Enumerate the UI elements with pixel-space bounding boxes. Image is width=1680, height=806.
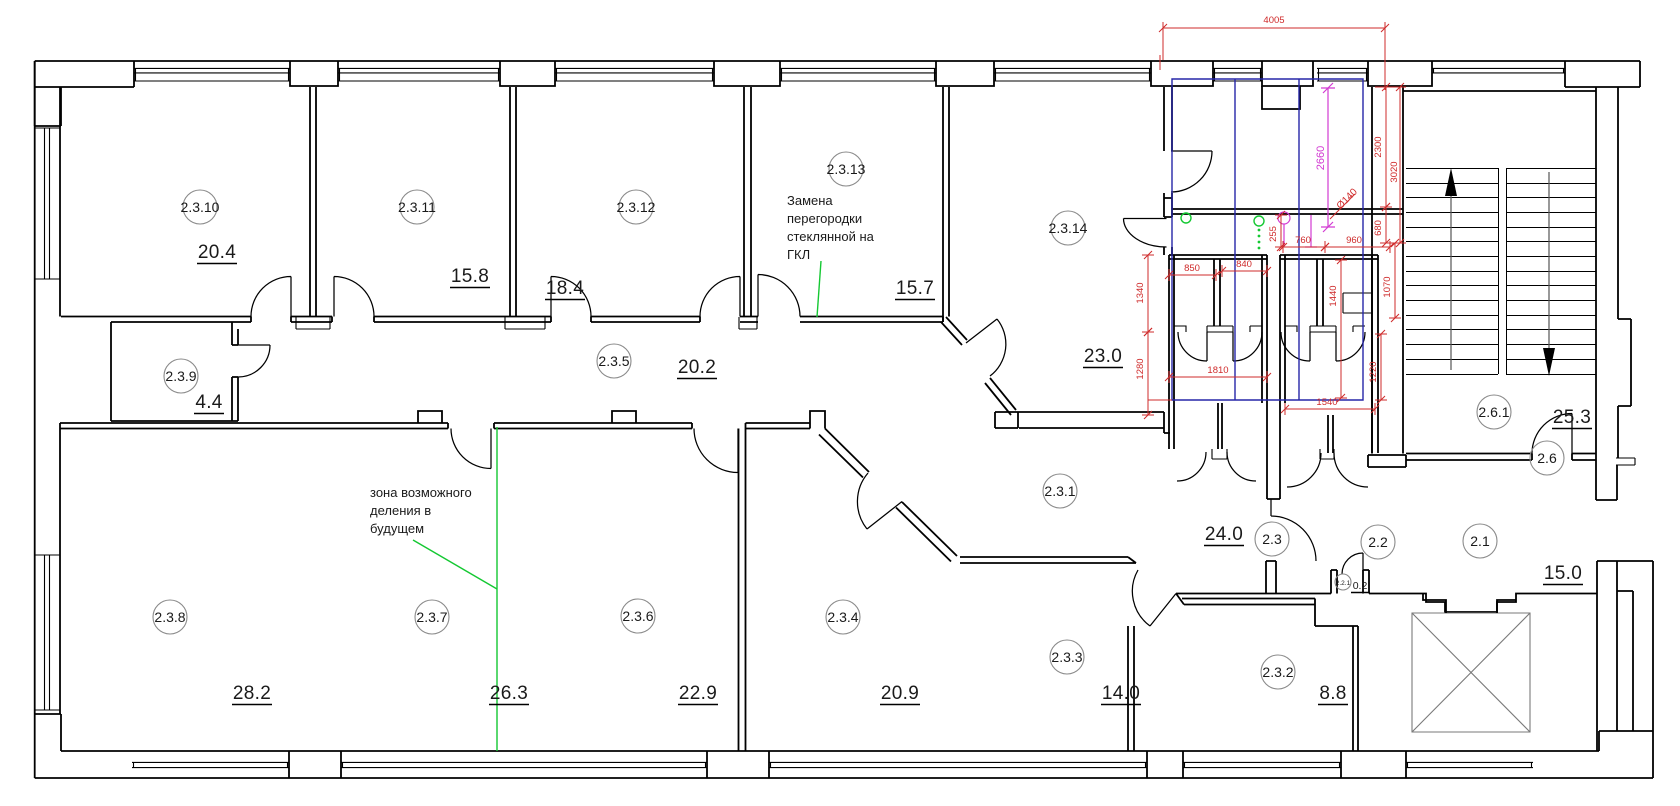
svg-text:2.2: 2.2 xyxy=(1368,534,1388,550)
svg-text:20.2: 20.2 xyxy=(678,357,716,378)
svg-text:850: 850 xyxy=(1184,263,1200,274)
svg-text:Замена: Замена xyxy=(787,193,833,208)
svg-text:2.3.4: 2.3.4 xyxy=(827,609,858,625)
svg-text:0.2: 0.2 xyxy=(1353,580,1368,592)
svg-text:15.7: 15.7 xyxy=(896,278,934,299)
svg-text:2660: 2660 xyxy=(1315,146,1327,170)
svg-text:2.3.5: 2.3.5 xyxy=(598,353,629,369)
svg-text:3020: 3020 xyxy=(1389,161,1400,182)
svg-text:2.3.13: 2.3.13 xyxy=(827,161,866,177)
svg-text:20.9: 20.9 xyxy=(881,683,919,704)
svg-text:22.9: 22.9 xyxy=(679,683,717,704)
svg-text:15.0: 15.0 xyxy=(1544,563,1582,584)
svg-text:1340: 1340 xyxy=(1135,282,1146,303)
svg-text:8.8: 8.8 xyxy=(1319,683,1346,704)
svg-text:760: 760 xyxy=(1295,235,1311,246)
svg-text:255: 255 xyxy=(1268,226,1279,242)
svg-text:1810: 1810 xyxy=(1207,365,1228,376)
svg-text:1070: 1070 xyxy=(1382,276,1393,297)
svg-text:680: 680 xyxy=(1373,220,1384,236)
svg-text:2.6.1: 2.6.1 xyxy=(1478,404,1509,420)
svg-text:будущем: будущем xyxy=(370,521,424,536)
svg-text:2300: 2300 xyxy=(1373,136,1384,157)
svg-text:2.3.14: 2.3.14 xyxy=(1049,220,1088,236)
svg-text:1220: 1220 xyxy=(1368,361,1379,382)
svg-text:4.4: 4.4 xyxy=(195,392,222,413)
svg-text:2.3.9: 2.3.9 xyxy=(165,368,196,384)
svg-text:20.4: 20.4 xyxy=(198,242,236,263)
svg-text:840: 840 xyxy=(1236,259,1252,270)
svg-text:2.3.11: 2.3.11 xyxy=(398,199,436,215)
svg-text:25.3: 25.3 xyxy=(1553,407,1591,428)
svg-text:2.6: 2.6 xyxy=(1537,450,1557,466)
svg-text:23.0: 23.0 xyxy=(1084,346,1122,367)
svg-text:ГКЛ: ГКЛ xyxy=(787,247,810,262)
svg-text:18.4: 18.4 xyxy=(546,278,584,299)
svg-text:15.8: 15.8 xyxy=(451,266,489,287)
svg-text:1280: 1280 xyxy=(1135,358,1146,379)
svg-text:2.3.8: 2.3.8 xyxy=(154,609,185,625)
svg-text:2.3.7: 2.3.7 xyxy=(416,609,447,625)
svg-text:2.1: 2.1 xyxy=(1470,533,1490,549)
svg-text:960: 960 xyxy=(1346,235,1362,246)
svg-text:1440: 1440 xyxy=(1328,285,1339,306)
svg-text:1540: 1540 xyxy=(1316,397,1337,408)
svg-text:4005: 4005 xyxy=(1263,15,1284,26)
svg-text:2.3: 2.3 xyxy=(1262,531,1282,547)
svg-text:2.3.6: 2.3.6 xyxy=(622,608,653,624)
svg-text:2.3.3: 2.3.3 xyxy=(1051,649,1082,665)
svg-text:деления в: деления в xyxy=(370,503,431,518)
svg-text:2.3.12: 2.3.12 xyxy=(617,199,656,215)
svg-text:2.3.1: 2.3.1 xyxy=(1044,483,1075,499)
svg-text:26.3: 26.3 xyxy=(490,683,528,704)
svg-text:28.2: 28.2 xyxy=(233,683,271,704)
svg-text:24.0: 24.0 xyxy=(1205,524,1243,545)
svg-text:2.3.10: 2.3.10 xyxy=(181,199,220,215)
svg-text:2.3.2: 2.3.2 xyxy=(1262,664,1293,680)
svg-text:14.0: 14.0 xyxy=(1102,683,1140,704)
svg-text:перегородки: перегородки xyxy=(787,211,862,226)
svg-text:2.2.1: 2.2.1 xyxy=(1336,580,1351,587)
svg-text:стеклянной на: стеклянной на xyxy=(787,229,875,244)
svg-text:зона возможного: зона возможного xyxy=(370,485,472,500)
